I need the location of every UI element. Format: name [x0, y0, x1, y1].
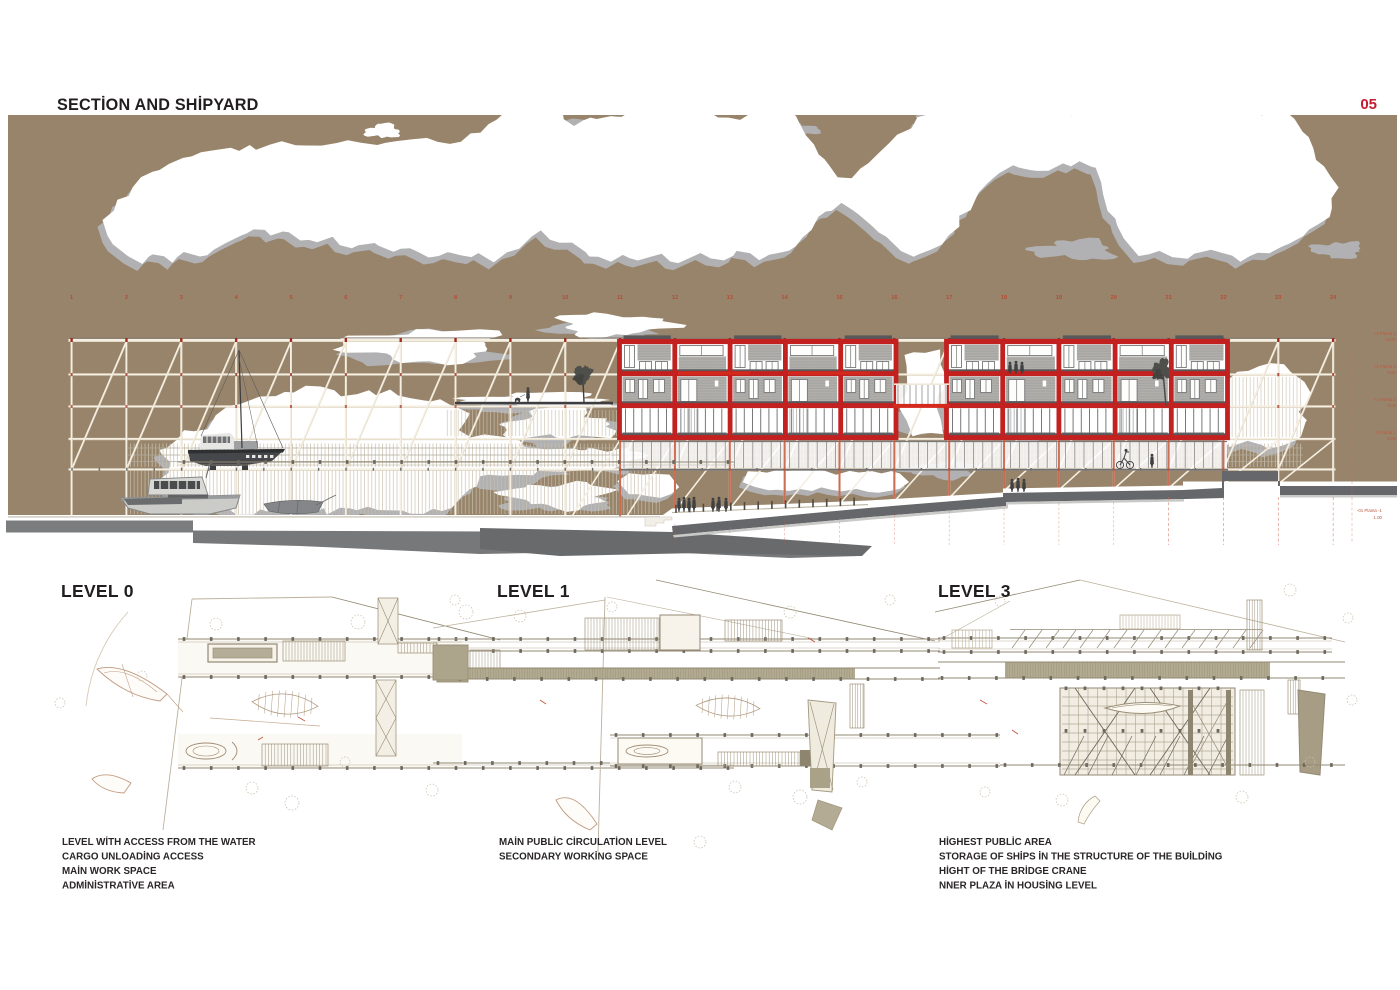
svg-text:LEVEL WİTH ACCESS FROM THE WAT: LEVEL WİTH ACCESS FROM THE WATER [62, 837, 256, 848]
svg-text:16: 16 [891, 295, 897, 301]
svg-text:17: 17 [946, 295, 952, 301]
svg-text:5.00: 5.00 [1387, 403, 1396, 408]
svg-text:9.00: 9.00 [1387, 370, 1396, 375]
svg-text:6: 6 [344, 295, 347, 301]
svg-text:14: 14 [782, 295, 789, 301]
svg-text:24: 24 [1330, 295, 1337, 301]
svg-text:CARGO UNLOADİNG ACCESS: CARGO UNLOADİNG ACCESS [62, 852, 204, 863]
svg-text:15: 15 [836, 295, 842, 301]
svg-text:SECTİON AND SHİPYARD: SECTİON AND SHİPYARD [57, 96, 259, 114]
svg-text:-01 Planta -1: -01 Planta -1 [1357, 508, 1383, 513]
svg-text:9: 9 [509, 295, 512, 301]
svg-text:3: 3 [180, 295, 183, 301]
svg-text:10: 10 [562, 295, 568, 301]
svg-text:HİGHEST PUBLİC AREA: HİGHEST PUBLİC AREA [939, 837, 1052, 848]
svg-text:ADMİNİSTRATİVE AREA: ADMİNİSTRATİVE AREA [62, 881, 175, 892]
svg-text:+3 Planta 4: +3 Planta 4 [1374, 331, 1397, 336]
svg-text:12: 12 [672, 295, 678, 301]
svg-text:19: 19 [1056, 295, 1062, 301]
svg-text:5: 5 [289, 295, 292, 301]
svg-text:8: 8 [454, 295, 457, 301]
svg-text:0 Planta 1: 0 Planta 1 [1376, 430, 1396, 435]
svg-text:0.00: 0.00 [1387, 436, 1396, 441]
svg-text:SECONDARY WORKİNG SPACE: SECONDARY WORKİNG SPACE [499, 852, 648, 863]
svg-text:1: 1 [70, 295, 73, 301]
svg-text:NNER PLAZA İN HOUSİNG LEVEL: NNER PLAZA İN HOUSİNG LEVEL [939, 881, 1097, 892]
svg-text:23: 23 [1275, 295, 1281, 301]
svg-text:7: 7 [399, 295, 402, 301]
svg-text:MAİN PUBLİC CİRCULATİON LEVEL: MAİN PUBLİC CİRCULATİON LEVEL [499, 837, 667, 848]
svg-text:05: 05 [1360, 96, 1377, 113]
svg-text:1.00: 1.00 [1373, 515, 1382, 520]
svg-text:22: 22 [1220, 295, 1226, 301]
svg-text:11: 11 [617, 295, 623, 301]
svg-text:HİGHT OF THE BRİDGE CRANE: HİGHT OF THE BRİDGE CRANE [939, 866, 1087, 877]
svg-text:2: 2 [125, 295, 128, 301]
svg-text:STORAGE OF SHİPS İN THE STRUCT: STORAGE OF SHİPS İN THE STRUCTURE OF THE… [939, 852, 1223, 863]
svg-text:13.00: 13.00 [1385, 337, 1397, 342]
svg-text:18: 18 [1001, 295, 1007, 301]
svg-text:13: 13 [727, 295, 733, 301]
svg-text:LEVEL 0: LEVEL 0 [61, 581, 134, 601]
svg-text:+2 Planta 3: +2 Planta 3 [1374, 364, 1397, 369]
svg-text:+1 Planta 2: +1 Planta 2 [1374, 397, 1397, 402]
svg-text:LEVEL 1: LEVEL 1 [497, 581, 570, 601]
svg-text:21: 21 [1165, 295, 1171, 301]
svg-text:LEVEL 3: LEVEL 3 [938, 581, 1011, 601]
svg-text:MAİN WORK SPACE: MAİN WORK SPACE [62, 866, 157, 877]
svg-text:20: 20 [1111, 295, 1117, 301]
